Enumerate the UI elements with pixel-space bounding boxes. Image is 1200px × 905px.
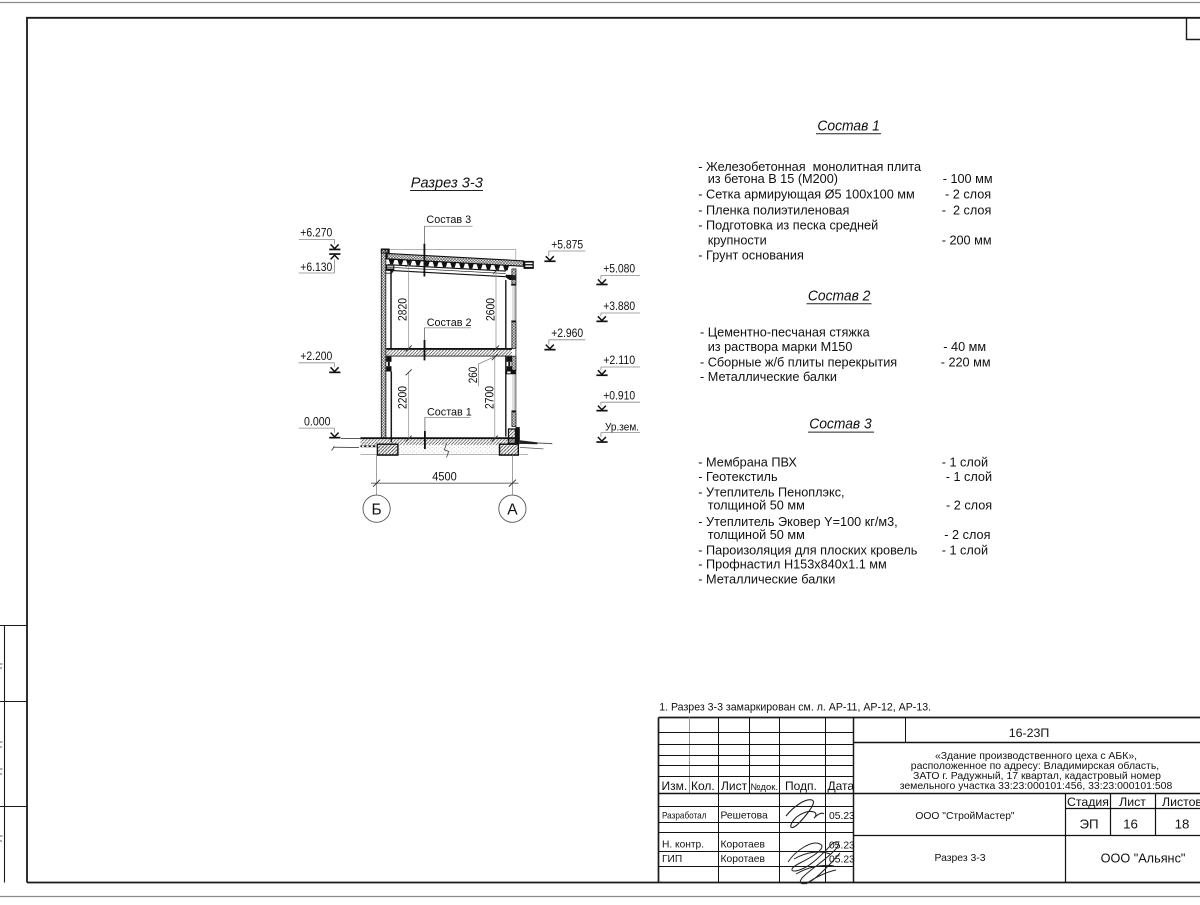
svg-text:- 40 мм: - 40 мм bbox=[943, 340, 986, 354]
svg-text:Состав 2: Состав 2 bbox=[427, 317, 472, 329]
svg-text:Состав 1: Состав 1 bbox=[427, 407, 472, 419]
svg-text:толщиной 50 мм: толщиной 50 мм bbox=[708, 499, 805, 513]
svg-text:Листов: Листов bbox=[1162, 795, 1200, 809]
svg-text:2200: 2200 bbox=[395, 386, 409, 409]
svg-text:Состав 2: Состав 2 bbox=[808, 287, 871, 304]
svg-text:- 1 слой: - 1 слой bbox=[942, 456, 988, 470]
svg-text:- 2 слоя: - 2 слоя bbox=[944, 528, 990, 542]
svg-text:4500: 4500 bbox=[432, 470, 457, 484]
svg-text:2700: 2700 bbox=[483, 386, 497, 409]
svg-text:- Пленка полиэтиленовая: - Пленка полиэтиленовая bbox=[698, 203, 849, 217]
svg-text:земельного участка 33:23:00010: земельного участка 33:23:000101:456, 33:… bbox=[900, 781, 1173, 792]
svg-text:толщиной 50 мм: толщиной 50 мм bbox=[708, 528, 805, 542]
svg-text:Кол.: Кол. bbox=[691, 779, 715, 793]
svg-text:- 1 слой: - 1 слой bbox=[946, 470, 992, 484]
svg-text:А: А bbox=[507, 502, 518, 519]
svg-text:+2.110: +2.110 bbox=[603, 355, 635, 367]
svg-text:ГИП: ГИП bbox=[662, 854, 682, 865]
svg-text:+5.875: +5.875 bbox=[551, 239, 583, 251]
svg-text:+0.910: +0.910 bbox=[603, 390, 635, 402]
svg-text:- Цементно-песчаная стяжка: - Цементно-песчаная стяжка bbox=[700, 326, 871, 340]
svg-text:из раствора марки М150: из раствора марки М150 bbox=[708, 340, 853, 354]
svg-text:- Металлические балки: - Металлические балки bbox=[698, 572, 835, 586]
svg-text:- Мембрана ПВХ: - Мембрана ПВХ bbox=[698, 456, 797, 470]
svg-text:- Профнастил Н153х840х1.1 мм: - Профнастил Н153х840х1.1 мм bbox=[698, 558, 886, 572]
svg-text:- Сетка армирующая Ø5 100х100: - Сетка армирующая Ø5 100х100 мм bbox=[698, 188, 914, 202]
svg-text:ООО "СтройМастер": ООО "СтройМастер" bbox=[915, 811, 1015, 822]
svg-text:Разрез 3-3: Разрез 3-3 bbox=[411, 174, 484, 191]
svg-text:1. Разрез 3-3 замаркирован см.: 1. Разрез 3-3 замаркирован см. л. АР-11,… bbox=[659, 702, 931, 714]
svg-text:+3.880: +3.880 bbox=[603, 301, 635, 313]
svg-text:- 100 мм: - 100 мм bbox=[943, 172, 993, 186]
svg-text:16: 16 bbox=[1123, 817, 1138, 832]
svg-text:Решетова: Решетова bbox=[721, 810, 768, 821]
svg-text:Дата: Дата bbox=[828, 779, 855, 793]
svg-text:Ур.зем.: Ур.зем. bbox=[605, 421, 639, 433]
svg-text:- 1 слой: - 1 слой bbox=[942, 543, 988, 557]
svg-text:05.23: 05.23 bbox=[829, 855, 855, 866]
svg-text:Разрез 3-3: Разрез 3-3 bbox=[934, 853, 985, 864]
svg-text:Состав 3: Состав 3 bbox=[809, 416, 872, 433]
svg-text:ЭП: ЭП bbox=[1079, 817, 1098, 832]
svg-text:- Сборные ж/б плиты перекрытия: - Сборные ж/б плиты перекрытия bbox=[700, 356, 897, 370]
svg-text:16-23П: 16-23П bbox=[1009, 726, 1050, 740]
svg-text:Изм.: Изм. bbox=[662, 779, 688, 793]
svg-text:Н. контр.: Н. контр. bbox=[662, 840, 704, 851]
svg-text:05.23: 05.23 bbox=[829, 840, 855, 851]
svg-text:2820: 2820 bbox=[395, 298, 409, 321]
svg-text:- Утеплитель Пеноплэкс,: - Утеплитель Пеноплэкс, bbox=[698, 486, 844, 500]
svg-text:Состав 3: Состав 3 bbox=[426, 214, 471, 226]
svg-text:- 2 слоя: - 2 слоя bbox=[945, 188, 991, 202]
svg-text:+2.200: +2.200 bbox=[300, 351, 332, 363]
svg-text:из бетона В 15 (М200): из бетона В 15 (М200) bbox=[708, 172, 838, 186]
svg-text:- Подготовка из песка средней: - Подготовка из песка средней bbox=[698, 218, 878, 232]
svg-text:Коротаев: Коротаев bbox=[721, 854, 766, 865]
svg-text:- Геотекстиль: - Геотекстиль bbox=[698, 470, 778, 484]
svg-text:260: 260 bbox=[466, 366, 480, 383]
svg-text:№док.: №док. bbox=[751, 781, 778, 792]
svg-text:- Металлические балки: - Металлические балки bbox=[700, 370, 837, 384]
svg-text:Лист: Лист bbox=[1119, 795, 1146, 809]
svg-text:0.000: 0.000 bbox=[304, 416, 331, 428]
svg-text:05.23: 05.23 bbox=[829, 811, 855, 822]
svg-text:2600: 2600 bbox=[484, 298, 498, 321]
svg-text:+6.130: +6.130 bbox=[300, 262, 332, 274]
svg-text:- Грунт основания: - Грунт основания bbox=[698, 248, 804, 262]
svg-text:Лист: Лист bbox=[721, 779, 748, 793]
svg-text:+5.080: +5.080 bbox=[603, 264, 635, 276]
svg-text:Б: Б bbox=[372, 502, 382, 519]
svg-text:Состав 1: Состав 1 bbox=[817, 117, 880, 134]
svg-text:+6.270: +6.270 bbox=[300, 228, 332, 240]
svg-text:Разработал: Разработал bbox=[662, 810, 707, 821]
svg-text:- 220 мм: - 220 мм bbox=[941, 356, 991, 370]
svg-text:ООО "Альянс": ООО "Альянс" bbox=[1101, 852, 1186, 866]
svg-text:- 2 слоя: - 2 слоя bbox=[942, 203, 992, 217]
svg-text:+2.960: +2.960 bbox=[551, 328, 583, 340]
svg-text:- 200 мм: - 200 мм bbox=[942, 234, 992, 248]
svg-text:Подп.: Подп. bbox=[785, 779, 817, 793]
svg-text:Стадия: Стадия bbox=[1067, 795, 1109, 809]
svg-text:- Пароизоляция для плоских кро: - Пароизоляция для плоских кровель bbox=[698, 543, 917, 557]
svg-text:крупности: крупности bbox=[708, 234, 767, 248]
svg-text:- 2 слоя: - 2 слоя bbox=[946, 499, 992, 513]
svg-text:18: 18 bbox=[1175, 817, 1190, 832]
svg-text:Коротаев: Коротаев bbox=[721, 840, 766, 851]
